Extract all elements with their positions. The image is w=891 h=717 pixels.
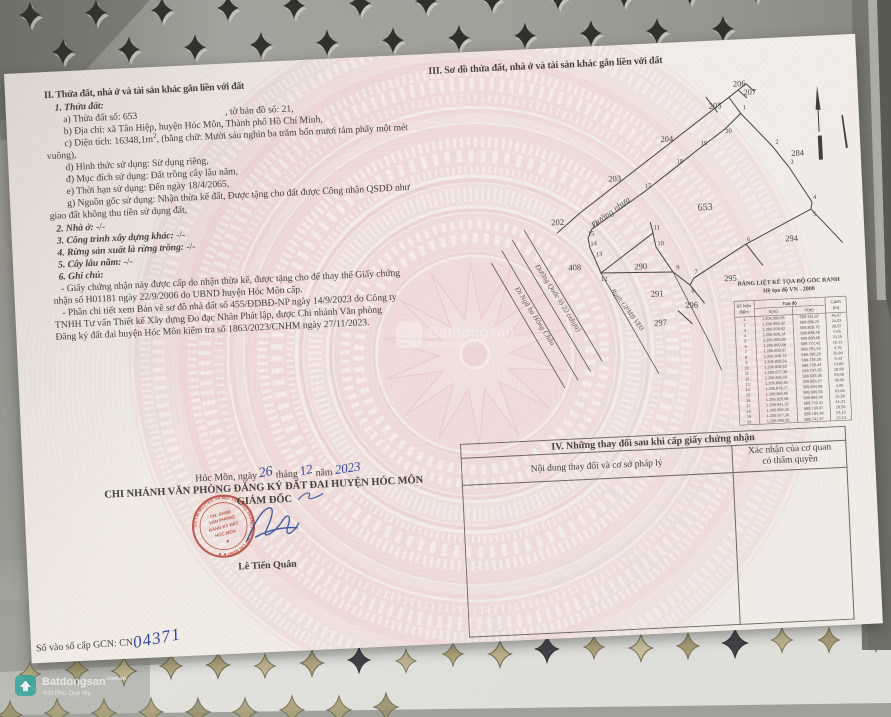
svg-text:Tọa độ: Tọa độ <box>782 300 797 306</box>
svg-text:13: 13 <box>596 251 603 258</box>
svg-text:207: 207 <box>743 87 756 98</box>
svg-text:9: 9 <box>676 264 680 271</box>
svg-text:8: 8 <box>745 355 747 360</box>
svg-text:3: 3 <box>790 159 794 166</box>
svg-text:10: 10 <box>744 365 749 370</box>
svg-text:589.741,97: 589.741,97 <box>804 416 824 422</box>
svg-text:14: 14 <box>590 240 598 247</box>
svg-text:Cạnh: Cạnh <box>830 299 841 305</box>
svg-text:2: 2 <box>743 322 745 327</box>
svg-text:5: 5 <box>813 211 817 218</box>
svg-text:11: 11 <box>654 224 661 231</box>
svg-text:7: 7 <box>694 269 698 276</box>
svg-text:10: 10 <box>657 240 664 247</box>
svg-text:202: 202 <box>551 217 564 228</box>
svg-text:15: 15 <box>588 230 595 237</box>
svg-text:(m): (m) <box>833 305 840 310</box>
svg-text:5: 5 <box>744 338 746 343</box>
svg-text:★: ★ <box>224 538 230 544</box>
svg-text:3: 3 <box>744 328 746 333</box>
svg-text:408: 408 <box>568 262 581 273</box>
svg-text:12: 12 <box>601 276 608 283</box>
svg-text:297: 297 <box>654 317 667 328</box>
svg-text:290: 290 <box>634 261 647 272</box>
svg-text:4: 4 <box>813 194 817 201</box>
svg-text:19: 19 <box>701 140 708 147</box>
svg-text:20: 20 <box>747 419 752 424</box>
svg-text:X(m): X(m) <box>768 309 778 314</box>
svg-text:9: 9 <box>745 360 747 365</box>
svg-text:18: 18 <box>676 158 683 165</box>
svg-text:1.206.990,85: 1.206.990,85 <box>767 417 790 423</box>
svg-text:23,13: 23,13 <box>836 415 846 420</box>
svg-text:296: 296 <box>685 300 698 311</box>
svg-text:6: 6 <box>744 344 746 349</box>
svg-text:7: 7 <box>745 349 747 354</box>
svg-text:Số hiệu: Số hiệu <box>736 303 752 309</box>
svg-text:1: 1 <box>743 104 747 111</box>
svg-text:điểm: điểm <box>739 309 749 314</box>
svg-text:291: 291 <box>650 288 663 299</box>
svg-text:204: 204 <box>660 134 674 145</box>
svg-text:294: 294 <box>785 233 799 244</box>
svg-text:1: 1 <box>743 317 745 322</box>
svg-text:4: 4 <box>744 333 747 338</box>
svg-text:8: 8 <box>691 288 695 295</box>
svg-text:653: 653 <box>697 202 713 214</box>
svg-text:2: 2 <box>775 139 779 146</box>
svg-text:Rạnh GPMB VĐ3: Rạnh GPMB VĐ3 <box>609 286 647 333</box>
svg-text:20: 20 <box>725 128 732 135</box>
svg-text:16: 16 <box>592 221 600 228</box>
svg-text:Y(m): Y(m) <box>804 307 814 312</box>
svg-text:284: 284 <box>791 147 805 158</box>
svg-text:203: 203 <box>608 173 621 184</box>
svg-text:205: 205 <box>709 100 722 111</box>
svg-text:17: 17 <box>645 183 653 190</box>
